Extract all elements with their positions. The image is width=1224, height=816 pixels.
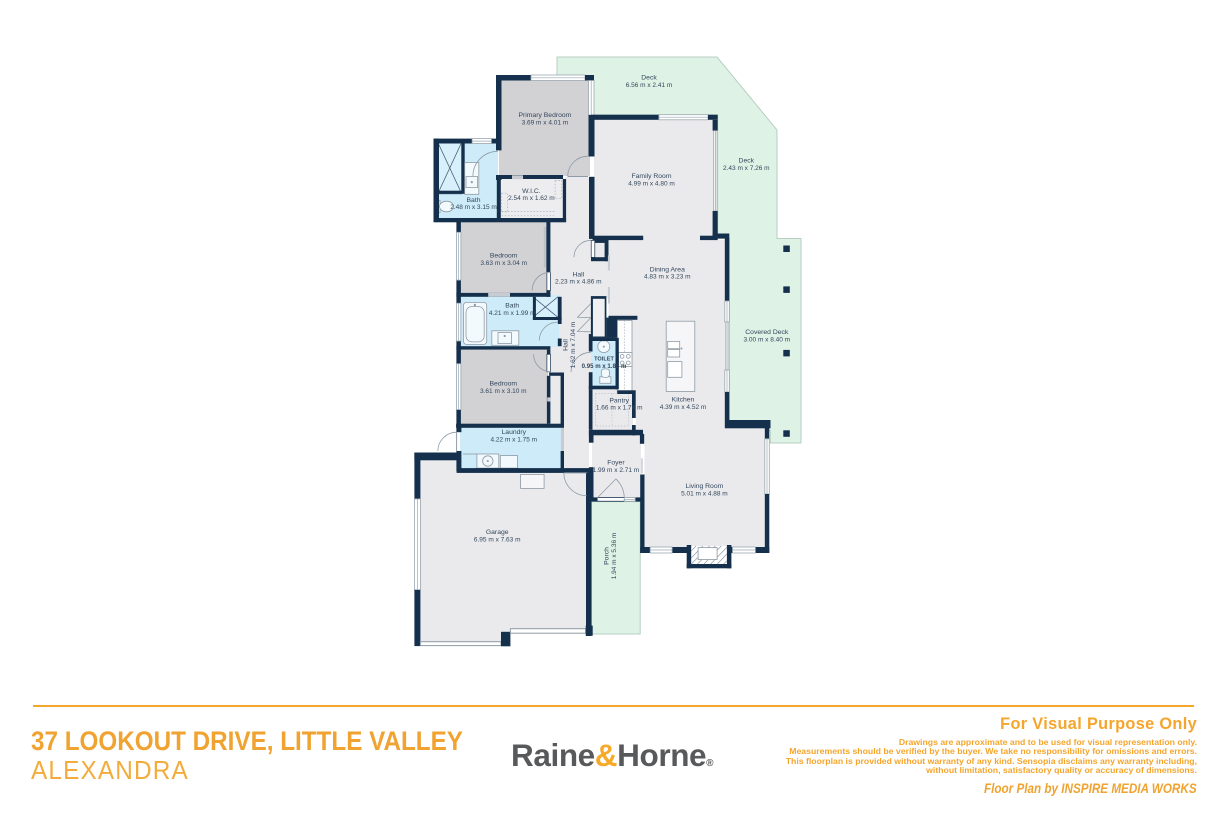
svg-text:Dining Area4.83 m x 3.23 m: Dining Area4.83 m x 3.23 m	[644, 266, 691, 280]
svg-text:Living Room5.01 m x 4.88 m: Living Room5.01 m x 4.88 m	[681, 483, 728, 497]
svg-text:1.94 m x 5.36 m: 1.94 m x 5.36 m	[611, 533, 618, 580]
svg-text:Family Room4.99 m x 4.80 m: Family Room4.99 m x 4.80 m	[628, 173, 675, 187]
svg-text:Porch: Porch	[604, 547, 611, 565]
svg-text:Hall: Hall	[563, 339, 570, 351]
svg-text:Covered Deck3.00 m x 8.40 m: Covered Deck3.00 m x 8.40 m	[743, 329, 790, 343]
svg-text:Primary Bedroom3.69 m x 4.01 m: Primary Bedroom3.69 m x 4.01 m	[518, 112, 571, 126]
svg-text:1.62 m x 7.04 m: 1.62 m x 7.04 m	[570, 322, 577, 369]
